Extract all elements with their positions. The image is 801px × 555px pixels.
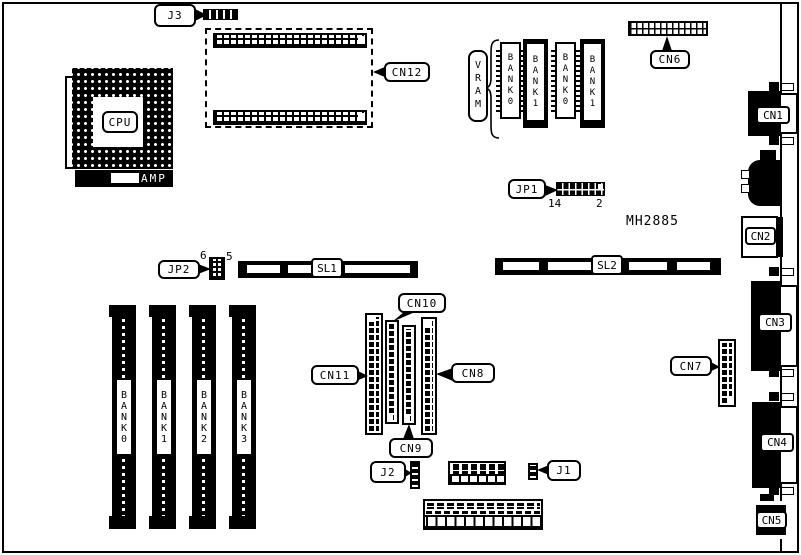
cn12-pin1-marker-bottom — [358, 113, 365, 121]
bracket-tab — [781, 137, 794, 145]
bracket-tab — [769, 486, 779, 495]
simm-slot-bank3: BANK3 — [229, 305, 259, 529]
slot-opening — [288, 265, 313, 273]
bracket-tab — [781, 268, 794, 276]
din-connector — [748, 160, 782, 206]
bracket-tab — [769, 392, 779, 401]
label-cn7: CN7 — [670, 356, 712, 376]
power-connector-12pin — [423, 499, 543, 530]
label-cn10: CN10 — [398, 293, 446, 313]
simm-latch-bottom — [229, 516, 256, 529]
din-tab — [741, 184, 750, 193]
label-cn4: CN4 — [760, 433, 794, 452]
label-cn1: CN1 — [756, 106, 790, 124]
cn8-connector — [421, 317, 437, 435]
j1-connector — [528, 463, 538, 480]
vram-chip-2: BANK1 — [523, 39, 548, 128]
slot-opening — [503, 262, 539, 270]
label-cn11: CN11 — [311, 365, 359, 385]
bracket-tab — [781, 393, 794, 401]
label-cn6: CN6 — [650, 50, 690, 69]
cn6-connector — [628, 21, 708, 36]
cn7-connector — [718, 339, 736, 407]
label-cn3: CN3 — [758, 313, 792, 332]
bracket-tab — [769, 267, 779, 276]
label-sl1: SL1 — [311, 258, 343, 278]
cn10-pin1-marker — [388, 415, 393, 420]
label-cn5: CN5 — [756, 511, 787, 529]
label-j1: J1 — [547, 460, 581, 481]
amp-bar-notch — [111, 173, 139, 183]
bracket-tab — [781, 83, 794, 91]
jp1-pin1-marker — [598, 184, 603, 189]
vram-chip-3: BANK0 — [551, 42, 580, 119]
amp-bar-label: AMP — [141, 172, 167, 185]
vram-chip-label: BANK0 — [555, 42, 576, 119]
jp2-header — [209, 257, 225, 280]
bracket-tab — [769, 368, 779, 377]
jp2-pin-number-right: 5 — [226, 250, 233, 263]
simm-slot-bank0: BANK0 — [109, 305, 139, 529]
label-cn12: CN12 — [384, 62, 430, 82]
cn9-pin1-marker — [405, 416, 410, 421]
cn7-pin1-marker — [727, 398, 732, 403]
simm-bank-label: BANK2 — [195, 378, 213, 456]
label-vram: VRAM — [468, 50, 488, 122]
bracket-tab — [769, 82, 779, 91]
label-cn2: CN2 — [745, 227, 776, 245]
power-connector-6pin — [448, 461, 506, 485]
label-sl2: SL2 — [591, 255, 623, 275]
label-cn8: CN8 — [451, 363, 495, 383]
cn9-connector — [402, 325, 416, 425]
simm-latch-bottom — [189, 516, 216, 529]
simm-slot-bank2: BANK2 — [189, 305, 219, 529]
cn10-connector — [385, 320, 399, 424]
cn11-pin1-marker — [369, 317, 374, 322]
simm-latch-bottom — [149, 516, 176, 529]
vram-chip-label: BANK0 — [500, 42, 521, 119]
slot-opening — [548, 262, 591, 270]
cn12-pin-strip-top — [213, 33, 367, 48]
cn11-connector — [365, 313, 383, 435]
label-j3: J3 — [154, 4, 196, 27]
label-jp2: JP2 — [158, 260, 200, 279]
simm-bank-label: BANK3 — [235, 378, 253, 456]
jp1-pin-number-left: 14 — [548, 197, 561, 210]
j2-connector — [410, 461, 420, 489]
din-tab — [741, 170, 750, 179]
slot-opening — [677, 262, 710, 270]
cn12-pin1-marker-top — [358, 36, 365, 44]
bracket-tab — [781, 487, 794, 495]
cn8-pin1-marker — [425, 321, 430, 326]
vram-chip-4: BANK1 — [580, 39, 605, 128]
cn12-pin-strip-bottom — [213, 110, 367, 125]
label-j2: J2 — [370, 461, 406, 483]
simm-bank-label: BANK1 — [155, 378, 173, 456]
label-cn9: CN9 — [389, 438, 433, 458]
slot-opening — [345, 265, 410, 273]
bracket-tab — [781, 369, 794, 377]
jp2-pin-number-left: 6 — [200, 249, 207, 262]
j3-connector — [203, 9, 238, 20]
label-cpu: CPU — [102, 111, 138, 133]
label-jp1: JP1 — [508, 179, 546, 199]
simm-latch-bottom — [109, 516, 136, 529]
bracket-tab — [769, 136, 779, 145]
slot-opening — [629, 262, 667, 270]
jp1-pin-number-right: 2 — [596, 197, 603, 210]
simm-bank-label: BANK0 — [115, 378, 133, 456]
simm-slot-bank1: BANK1 — [149, 305, 179, 529]
slot-opening — [247, 265, 280, 273]
board-part-number: MH2885 — [626, 214, 679, 229]
vram-chip-1: BANK0 — [496, 42, 525, 119]
motherboard-diagram: J3 CN12 CPU AMP VRAM BANK0 BANK1 BANK0 B… — [0, 0, 801, 555]
